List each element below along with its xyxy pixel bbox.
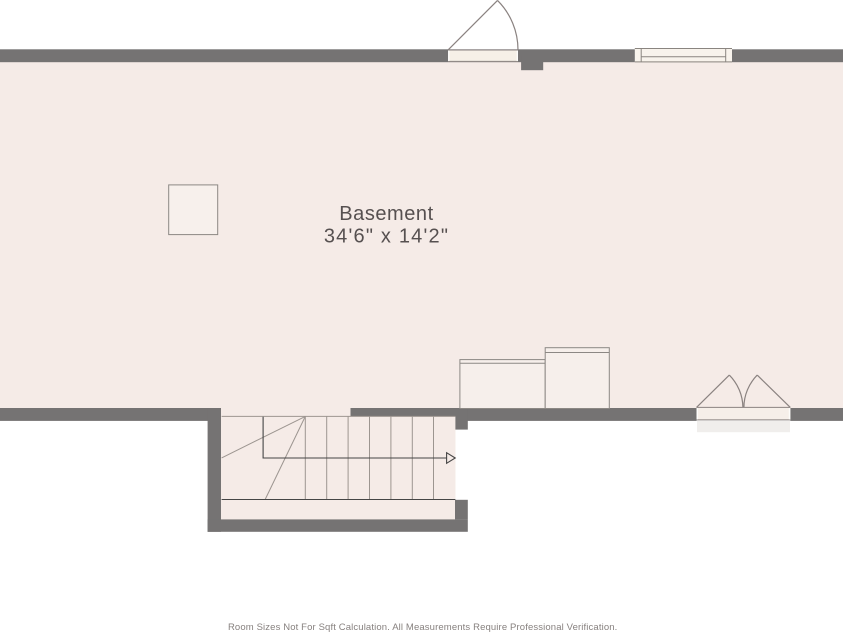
svg-text:34'6" x 14'2": 34'6" x 14'2" <box>324 226 449 248</box>
svg-text:Room Sizes Not For Sqft Calcul: Room Sizes Not For Sqft Calculation. All… <box>228 622 618 632</box>
svg-text:Basement: Basement <box>339 203 433 225</box>
